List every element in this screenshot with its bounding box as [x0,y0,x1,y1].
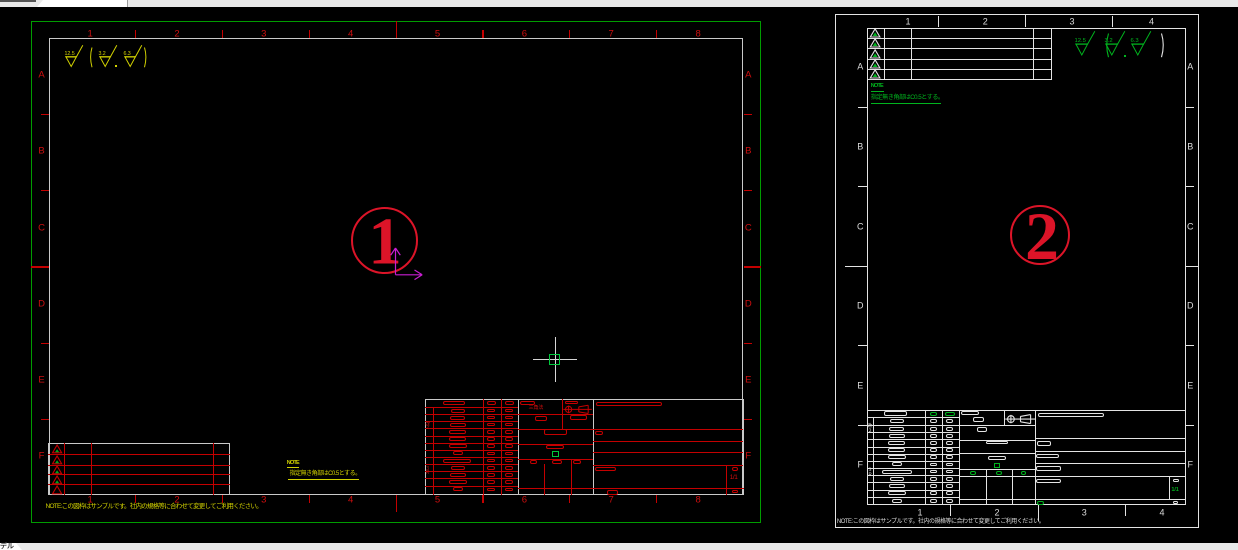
svg-text:3.2: 3.2 [99,50,106,56]
svg-text:6.3: 6.3 [1131,38,1140,44]
svg-text:12.5: 12.5 [65,50,75,56]
svg-text:12.5: 12.5 [1075,38,1087,44]
svg-text:3.2: 3.2 [1104,38,1112,44]
svg-text:6.3: 6.3 [124,50,131,56]
